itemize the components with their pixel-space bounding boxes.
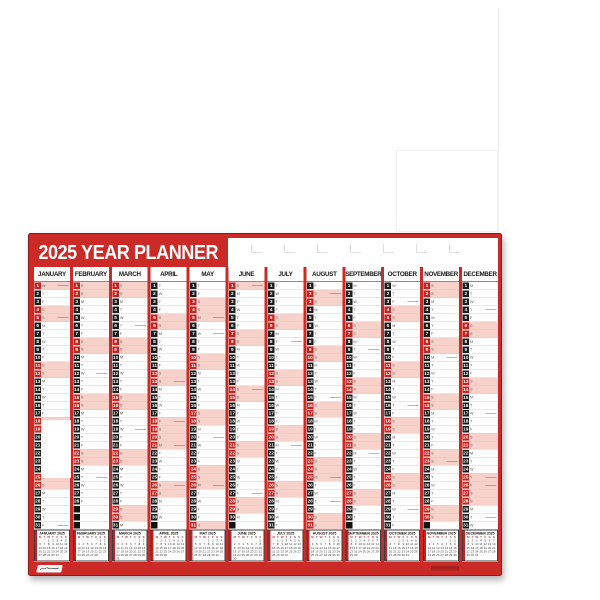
weekday-letter: F xyxy=(120,388,122,392)
weekday-letter: S xyxy=(198,364,201,368)
day-row: 28F xyxy=(423,498,459,506)
day-row: 14S xyxy=(462,386,498,394)
printed-note-mark xyxy=(174,445,185,446)
print-smudge xyxy=(431,566,459,571)
day-row: 22S xyxy=(112,450,148,458)
day-row: 8W xyxy=(384,338,420,346)
day-number: 30 xyxy=(346,514,353,521)
day-row: 23W xyxy=(151,458,187,466)
day-number: 12 xyxy=(346,370,353,377)
weekday-letter: S xyxy=(159,436,162,440)
day-row: 23M xyxy=(229,458,265,466)
day-number: 15 xyxy=(346,394,353,401)
day-row: 16S xyxy=(112,402,148,410)
day-number: 28 xyxy=(307,498,314,505)
day-number: 29 xyxy=(424,506,431,513)
day-number: 10 xyxy=(151,354,158,361)
day-grid: 1T2W3T4F5S6S7M8T9W10T11F12S13S14M15T16W1… xyxy=(267,282,303,529)
weekday-letter: S xyxy=(275,380,278,384)
day-number: 9 xyxy=(424,346,431,353)
day-number: 14 xyxy=(73,386,80,393)
day-number: 4 xyxy=(385,306,392,313)
day-number: 5 xyxy=(73,314,80,321)
day-number: 12 xyxy=(35,370,42,377)
day-row: 13T xyxy=(190,378,226,386)
day-row: 3T xyxy=(151,298,187,306)
day-row: 9T xyxy=(462,346,498,354)
day-row: 26S xyxy=(267,482,303,490)
day-number: 20 xyxy=(229,434,236,441)
day-row: 28F xyxy=(73,498,109,506)
day-row: 10T xyxy=(267,354,303,362)
day-number: 16 xyxy=(112,402,119,409)
mini-day-cell: 30 xyxy=(453,554,457,558)
day-number: 26 xyxy=(307,482,314,489)
day-row: 4T xyxy=(423,306,459,314)
day-row: 1S xyxy=(112,282,148,290)
day-number: 2 xyxy=(73,290,80,297)
day-number: 8 xyxy=(35,338,42,345)
month-column-january: JANUARY1W2T3F4S5S6M7T8W9T10F11S12S13M14T… xyxy=(34,267,70,562)
day-number: 16 xyxy=(35,402,42,409)
day-row: 25F xyxy=(267,474,303,482)
weekday-letter: M xyxy=(353,452,356,456)
day-number: 8 xyxy=(112,338,119,345)
day-number: 8 xyxy=(268,338,275,345)
day-number: 21 xyxy=(190,442,197,449)
day-grid: 1M2T3W4T5F6S7S8M9T10W11T12F13S14S15M16T1… xyxy=(462,282,498,529)
day-number: 10 xyxy=(190,354,197,361)
day-number: 29 xyxy=(229,506,236,513)
printed-note-mark xyxy=(408,509,419,510)
day-row: 10W xyxy=(462,354,498,362)
day-row: 4F xyxy=(151,306,187,314)
weekday-letter: S xyxy=(353,332,356,336)
weekday-letter: S xyxy=(353,444,356,448)
day-row: 8S xyxy=(229,338,265,346)
weekday-letter: T xyxy=(470,348,472,352)
day-number: 16 xyxy=(385,402,392,409)
day-number: 23 xyxy=(424,458,431,465)
day-row: 27T xyxy=(423,490,459,498)
day-row: 19S xyxy=(384,426,420,434)
day-row: 26S xyxy=(384,482,420,490)
day-number: 23 xyxy=(229,458,236,465)
day-row: 13S xyxy=(345,378,381,386)
weekday-letter: S xyxy=(81,460,84,464)
month-column-october: OCTOBER1W2T3F4S5S6M7T8W9T10F11S12S13M14T… xyxy=(384,267,420,562)
day-number: 5 xyxy=(424,314,431,321)
day-row: 20T xyxy=(423,434,459,442)
weekday-letter: S xyxy=(237,499,240,503)
weekday-letter: S xyxy=(431,452,434,456)
weekday-letter: M xyxy=(237,515,240,519)
mini-calendar-red-strip xyxy=(230,531,232,561)
weekday-letter: W xyxy=(237,475,241,479)
day-row: 31T xyxy=(267,522,303,529)
weekday-letter: T xyxy=(275,340,277,344)
day-row: 1W xyxy=(384,282,420,290)
day-row: 25T xyxy=(112,474,148,482)
day-number: 1 xyxy=(112,282,119,289)
day-number: 18 xyxy=(385,418,392,425)
weekday-letter: S xyxy=(275,324,278,328)
day-row: 27S xyxy=(151,490,187,498)
weekday-letter: W xyxy=(42,396,46,400)
weekday-letter: T xyxy=(353,460,355,464)
day-number: 17 xyxy=(190,410,197,417)
day-row: 16T xyxy=(34,402,70,410)
weekday-letter: F xyxy=(159,364,161,368)
weekday-letter: W xyxy=(353,412,357,416)
day-number xyxy=(73,514,80,521)
day-row: 15S xyxy=(229,394,265,402)
day-number: 8 xyxy=(151,338,158,345)
weekday-letter: T xyxy=(81,308,83,312)
day-row: 6W xyxy=(306,322,342,330)
day-number: 24 xyxy=(268,466,275,473)
day-number: 21 xyxy=(307,442,314,449)
hang-mark xyxy=(251,244,262,253)
mini-calendar: JANUARY 2025MTWTFSS123456789101112131415… xyxy=(34,530,70,562)
day-number: 26 xyxy=(229,482,236,489)
day-row: 29M xyxy=(462,506,498,514)
day-row: 12F xyxy=(345,370,381,378)
weekday-letter: W xyxy=(353,300,357,304)
day-number xyxy=(424,522,431,529)
day-row: 26F xyxy=(345,482,381,490)
day-number: 26 xyxy=(112,482,119,489)
day-number: 1 xyxy=(346,282,353,289)
day-row: 20T xyxy=(190,434,226,442)
day-number: 11 xyxy=(463,362,470,369)
day-row: 3W xyxy=(345,298,381,306)
day-row: 17T xyxy=(267,410,303,418)
day-row: 1T xyxy=(267,282,303,290)
day-row: 28T xyxy=(384,498,420,506)
day-row: 4M xyxy=(306,306,342,314)
day-number: 29 xyxy=(268,506,275,513)
day-number: 20 xyxy=(73,434,80,441)
day-number: 2 xyxy=(35,290,42,297)
day-row: 21W xyxy=(190,442,226,450)
weekday-letter: S xyxy=(353,491,356,495)
day-number: 7 xyxy=(35,330,42,337)
day-number: 27 xyxy=(424,490,431,497)
weekday-letter: F xyxy=(81,332,83,336)
day-number: 29 xyxy=(35,506,42,513)
day-number: 4 xyxy=(463,306,470,313)
day-number: 14 xyxy=(268,386,275,393)
day-row: 26S xyxy=(151,482,187,490)
day-row: 15T xyxy=(151,394,187,402)
weekday-letter: T xyxy=(159,452,161,456)
day-number: 19 xyxy=(385,426,392,433)
day-row: 5F xyxy=(462,314,498,322)
day-row: 30F xyxy=(190,514,226,522)
day-row: 19W xyxy=(423,426,459,434)
weekday-letter: S xyxy=(431,396,434,400)
day-number: 6 xyxy=(73,322,80,329)
day-row: 14T xyxy=(306,386,342,394)
day-number: 25 xyxy=(229,474,236,481)
day-row: 26W xyxy=(423,482,459,490)
weekday-letter: S xyxy=(470,499,473,503)
day-number: 3 xyxy=(229,298,236,305)
day-row: 16S xyxy=(306,402,342,410)
weekday-letter: F xyxy=(159,420,161,424)
day-row: 21F xyxy=(423,442,459,450)
day-row: 7M xyxy=(151,330,187,338)
day-number: 31 xyxy=(35,522,42,529)
mini-calendar-grid: MTWTFSS123456789101112131415161718192021… xyxy=(152,536,186,558)
day-row: 27T xyxy=(112,490,148,498)
day-number: 31 xyxy=(190,522,197,529)
weekday-letter: T xyxy=(431,475,433,479)
day-row: 30S xyxy=(423,514,459,522)
day-row: 5S xyxy=(151,314,187,322)
weekday-letter: T xyxy=(198,324,200,328)
weekday-letter: F xyxy=(470,372,472,376)
day-number: 1 xyxy=(268,282,275,289)
weekday-letter: W xyxy=(198,388,202,392)
photo-glare-patch xyxy=(42,420,71,478)
day-number: 18 xyxy=(73,418,80,425)
day-row: 24S xyxy=(306,466,342,474)
day-number: 15 xyxy=(268,394,275,401)
day-row: 20S xyxy=(267,434,303,442)
weekday-letter: F xyxy=(470,316,472,320)
weekday-letter: M xyxy=(81,468,84,472)
day-number: 27 xyxy=(268,490,275,497)
day-row: 12S xyxy=(34,370,70,378)
day-number: 10 xyxy=(229,354,236,361)
day-number: 29 xyxy=(151,506,158,513)
day-row: 29W xyxy=(34,506,70,514)
day-row: 23S xyxy=(306,458,342,466)
day-number: 30 xyxy=(463,514,470,521)
day-number: 29 xyxy=(463,506,470,513)
hang-mark xyxy=(284,244,295,253)
day-row: 9W xyxy=(267,346,303,354)
day-number: 11 xyxy=(346,362,353,369)
day-row: 6T xyxy=(112,322,148,330)
day-row: 25M xyxy=(306,474,342,482)
day-number: 26 xyxy=(151,482,158,489)
header-strip: 2025 YEAR PLANNER xyxy=(34,238,498,267)
day-row: 13T xyxy=(423,378,459,386)
day-number: 20 xyxy=(307,434,314,441)
day-number: 28 xyxy=(424,498,431,505)
day-grid: 1S2S3M4T5W6T7F8S9S10M11T12W13T14F15S16S1… xyxy=(423,282,459,529)
weekday-letter: M xyxy=(275,444,278,448)
day-number: 4 xyxy=(112,306,119,313)
day-row: 18F xyxy=(151,418,187,426)
weekday-letter: T xyxy=(237,300,239,304)
day-number: 25 xyxy=(307,474,314,481)
weekday-letter: T xyxy=(314,499,316,503)
day-row: 13S xyxy=(462,378,498,386)
day-row: 28S xyxy=(345,498,381,506)
day-number: 24 xyxy=(190,466,197,473)
month-column-september: SEPTEMBER1M2T3W4T5F6S7S8M9T10W11T12F13S1… xyxy=(345,267,381,562)
day-number: 25 xyxy=(385,474,392,481)
weekday-letter: M xyxy=(353,396,356,400)
day-row: 3F xyxy=(34,298,70,306)
weekday-letter: T xyxy=(159,340,161,344)
weekday-letter: T xyxy=(392,499,394,503)
day-row: 17M xyxy=(112,410,148,418)
ghost-photo-edge xyxy=(498,8,499,232)
weekday-letter: M xyxy=(314,420,317,424)
month-header: JUNE xyxy=(229,267,265,282)
day-number: 10 xyxy=(346,354,353,361)
day-number: 5 xyxy=(190,314,197,321)
day-number: 3 xyxy=(73,298,80,305)
day-row: 27S xyxy=(462,490,498,498)
day-number: 2 xyxy=(268,290,275,297)
day-row: 12W xyxy=(423,370,459,378)
day-row: 2S xyxy=(423,290,459,298)
day-row: 26F xyxy=(462,482,498,490)
mini-calendar: DECEMBER 2025MTWTFSS12345678910111213141… xyxy=(462,530,498,562)
weekday-letter: W xyxy=(431,316,435,320)
weekday-letter: F xyxy=(159,475,161,479)
day-row: 10M xyxy=(73,354,109,362)
month-header: MARCH xyxy=(112,267,148,282)
day-grid: 1W2T3F4S5S6M7T8W9T10F11S12S13M14T15W16T1… xyxy=(384,282,420,529)
day-row: 12W xyxy=(73,370,109,378)
weekday-letter: T xyxy=(470,292,472,296)
day-number: 8 xyxy=(463,338,470,345)
day-row: 7S xyxy=(345,330,381,338)
weekday-letter: M xyxy=(237,460,240,464)
mini-calendar-grid: MTWTFSS123456789101112131415161718192021… xyxy=(463,536,497,558)
weekday-letter: W xyxy=(120,483,124,487)
day-number: 6 xyxy=(112,322,119,329)
day-row: 19S xyxy=(151,426,187,434)
day-number: 5 xyxy=(151,314,158,321)
day-row: 18T xyxy=(112,418,148,426)
day-number: 12 xyxy=(385,370,392,377)
day-number: 4 xyxy=(346,306,353,313)
mini-day-cell xyxy=(297,554,301,558)
day-row: 12M xyxy=(190,370,226,378)
day-number: 19 xyxy=(112,426,119,433)
day-row: 15S xyxy=(423,394,459,402)
day-number: 13 xyxy=(35,378,42,385)
weekday-letter: S xyxy=(314,292,317,296)
day-number: 21 xyxy=(35,442,42,449)
day-number xyxy=(73,506,80,513)
day-number: 28 xyxy=(73,498,80,505)
day-row: 30S xyxy=(306,514,342,522)
mini-calendar: MARCH 2025MTWTFSS12345678910111213141516… xyxy=(112,530,148,562)
weekday-letter: F xyxy=(198,515,200,519)
weekday-letter: M xyxy=(314,364,317,368)
weekday-letter: S xyxy=(198,308,201,312)
day-row: 1T xyxy=(151,282,187,290)
weekday-letter: T xyxy=(120,475,122,479)
weekday-letter: T xyxy=(275,507,277,511)
day-number: 30 xyxy=(112,514,119,521)
weekday-letter: M xyxy=(431,300,434,304)
weekday-letter: W xyxy=(314,436,318,440)
day-number: 28 xyxy=(268,498,275,505)
day-number: 23 xyxy=(73,458,80,465)
day-number: 21 xyxy=(385,442,392,449)
mini-calendar-red-strip xyxy=(424,531,426,561)
weekday-letter: S xyxy=(120,348,123,352)
day-number: 23 xyxy=(346,458,353,465)
day-row: 20S xyxy=(151,434,187,442)
day-row: 17M xyxy=(423,410,459,418)
day-number: 10 xyxy=(463,354,470,361)
day-row: 11F xyxy=(267,362,303,370)
weekday-letter: T xyxy=(42,388,44,392)
weekday-letter: F xyxy=(392,412,394,416)
day-row: 25S xyxy=(384,474,420,482)
day-number: 11 xyxy=(35,362,42,369)
day-row: 14W xyxy=(190,386,226,394)
day-number: 7 xyxy=(424,330,431,337)
weekday-letter: M xyxy=(198,428,201,432)
day-row: 12S xyxy=(384,370,420,378)
weekday-letter: W xyxy=(275,515,279,519)
weekday-letter: T xyxy=(42,499,44,503)
weekday-letter: F xyxy=(237,324,239,328)
weekday-letter: W xyxy=(431,483,435,487)
day-row: 22T xyxy=(151,450,187,458)
day-number: 28 xyxy=(463,498,470,505)
weekday-letter: S xyxy=(159,316,162,320)
day-number: 4 xyxy=(151,306,158,313)
weekday-letter: W xyxy=(159,515,163,519)
day-row: 4W xyxy=(229,306,265,314)
day-number: 13 xyxy=(385,378,392,385)
day-row: 25S xyxy=(190,474,226,482)
day-number: 14 xyxy=(424,386,431,393)
day-number: 12 xyxy=(73,370,80,377)
day-row: 17F xyxy=(34,410,70,418)
weekday-letter: T xyxy=(353,364,355,368)
weekday-letter: M xyxy=(198,316,201,320)
day-number: 1 xyxy=(307,282,314,289)
weekday-letter: S xyxy=(431,340,434,344)
weekday-letter: T xyxy=(159,396,161,400)
day-number: 28 xyxy=(229,498,236,505)
day-row: 21M xyxy=(151,442,187,450)
day-number: 13 xyxy=(229,378,236,385)
mini-calendar-grid: MTWTFSS123456789101112131415161718192021… xyxy=(385,536,419,558)
day-number: 2 xyxy=(463,290,470,297)
day-number: 12 xyxy=(229,370,236,377)
day-row: 1W xyxy=(34,282,70,290)
weekday-letter: S xyxy=(275,316,278,320)
weekday-letter: F xyxy=(392,523,394,527)
day-row: 15F xyxy=(306,394,342,402)
day-row: 1T xyxy=(190,282,226,290)
day-number: 17 xyxy=(73,410,80,417)
day-number: 1 xyxy=(35,282,42,289)
weekday-letter: M xyxy=(120,300,123,304)
weekday-letter: W xyxy=(470,356,474,360)
day-row: 2S xyxy=(112,290,148,298)
day-number: 24 xyxy=(463,466,470,473)
day-number: 22 xyxy=(385,450,392,457)
day-row: 19F xyxy=(345,426,381,434)
weekday-letter: S xyxy=(431,292,434,296)
